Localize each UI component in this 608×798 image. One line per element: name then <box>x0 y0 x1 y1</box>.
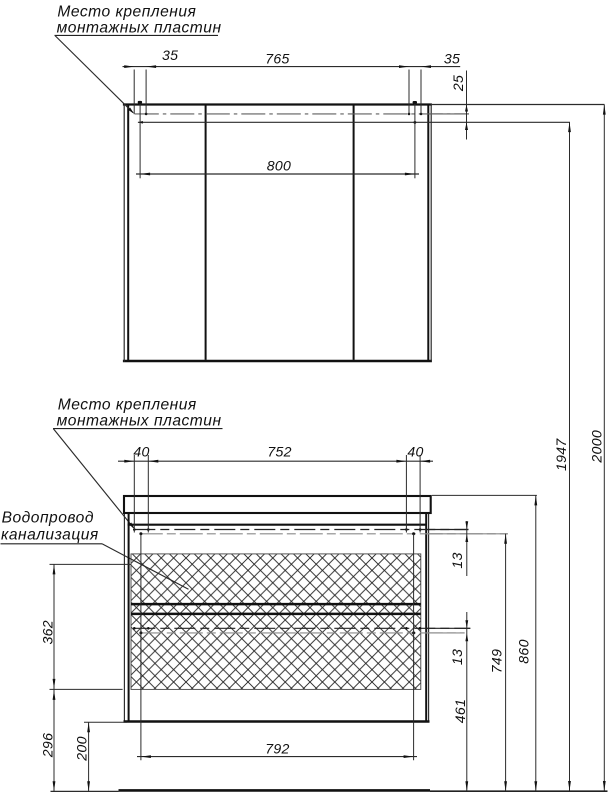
svg-text:канализация: канализация <box>1 527 99 544</box>
svg-text:13: 13 <box>449 552 465 568</box>
svg-text:2000: 2000 <box>589 430 605 464</box>
svg-text:752: 752 <box>267 443 291 459</box>
svg-text:монтажных пластин: монтажных пластин <box>57 19 222 36</box>
svg-text:765: 765 <box>265 51 289 67</box>
svg-text:200: 200 <box>74 736 90 761</box>
svg-text:35: 35 <box>444 51 460 67</box>
svg-text:800: 800 <box>267 158 291 174</box>
svg-text:13: 13 <box>449 649 465 665</box>
svg-text:792: 792 <box>265 740 289 756</box>
svg-text:1947: 1947 <box>553 438 569 471</box>
svg-text:Место крепления: Место крепления <box>58 397 197 414</box>
svg-text:362: 362 <box>40 620 56 644</box>
svg-text:25: 25 <box>450 75 466 92</box>
svg-text:монтажных пластин: монтажных пластин <box>57 412 222 429</box>
svg-text:296: 296 <box>40 733 56 758</box>
svg-text:40: 40 <box>133 443 149 459</box>
svg-text:40: 40 <box>407 443 423 459</box>
svg-text:Место крепления: Место крепления <box>57 4 196 21</box>
svg-text:749: 749 <box>489 649 505 673</box>
svg-text:461: 461 <box>452 699 468 723</box>
svg-text:Водопровод: Водопровод <box>2 510 94 527</box>
svg-text:860: 860 <box>516 639 532 663</box>
svg-text:35: 35 <box>162 47 178 63</box>
